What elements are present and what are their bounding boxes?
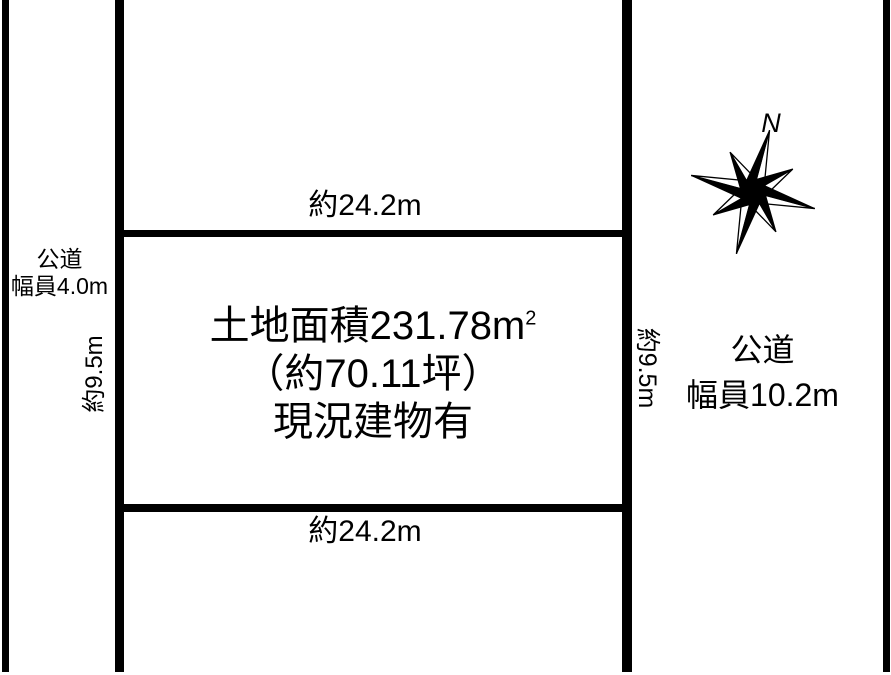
site-plan-diagram: 約24.2m 約24.2m 約9.5m 約9.5m 公道 幅員4.0m 公道 幅… xyxy=(0,0,891,675)
parcel-left-boundary-line xyxy=(115,0,124,672)
left-road-width: 幅員4.0m xyxy=(2,273,117,300)
left-road-outer-edge-line xyxy=(2,0,9,672)
compass-black-points xyxy=(680,114,830,267)
dimension-label-bottom-width: 約24.2m xyxy=(245,516,485,548)
dimension-label-left-depth: 約9.5m xyxy=(82,314,108,434)
right-road-type: 公道 xyxy=(660,328,865,373)
parcel-status-label: 現況建物有 xyxy=(124,398,622,446)
left-road-type: 公道 xyxy=(2,246,117,273)
right-road-width: 幅員10.2m xyxy=(660,373,865,418)
left-road-label: 公道 幅員4.0m xyxy=(2,246,117,300)
square-meter-superscript: 2 xyxy=(525,308,536,330)
right-road-outer-edge-line xyxy=(883,0,890,672)
parcel-area-text: 土地面積231.78m xyxy=(210,304,526,348)
parcel-info-block: 土地面積231.78m2 （約70.11坪） 現況建物有 xyxy=(124,302,622,446)
dimension-label-right-depth: 約9.5m xyxy=(634,308,660,428)
north-indicator-label: N xyxy=(761,108,781,138)
parcel-tsubo-label: （約70.11坪） xyxy=(124,350,622,398)
right-road-label: 公道 幅員10.2m xyxy=(660,328,865,418)
compass-rose-icon: N xyxy=(680,92,830,267)
parcel-area-label: 土地面積231.78m2 xyxy=(124,302,622,350)
parcel-top-boundary-line xyxy=(115,230,632,237)
parcel-bottom-boundary-line xyxy=(115,504,632,512)
parcel-right-boundary-line xyxy=(622,0,632,672)
dimension-label-top-width: 約24.2m xyxy=(245,190,485,222)
